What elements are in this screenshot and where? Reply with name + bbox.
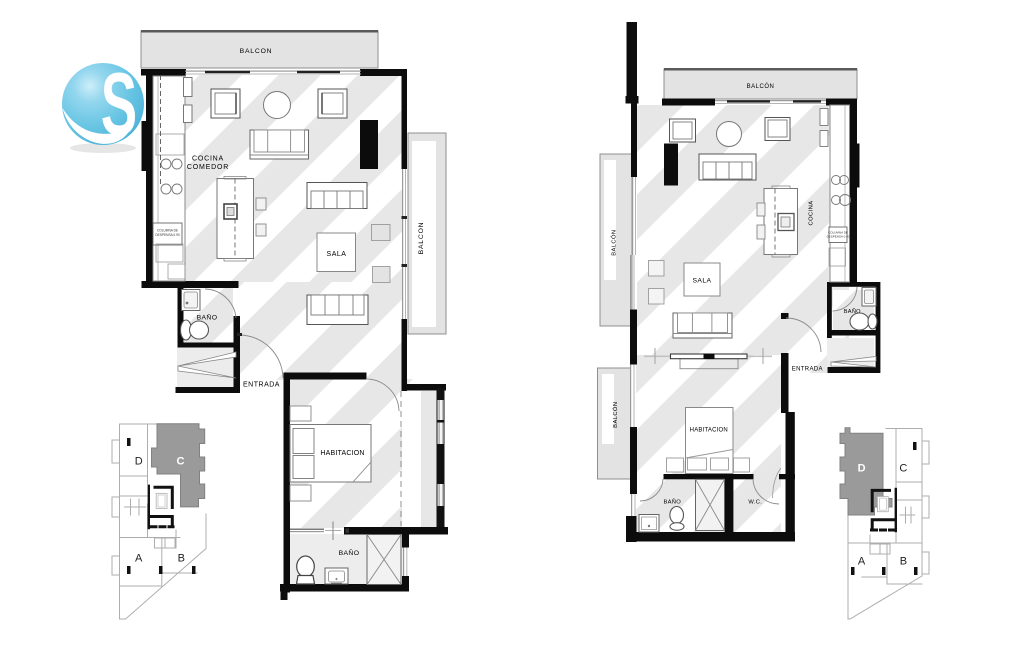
svg-text:COLUMNA DE: COLUMNA DE: [157, 229, 178, 233]
svg-text:A: A: [135, 553, 143, 565]
svg-text:A: A: [858, 556, 866, 568]
svg-text:BAÑO: BAÑO: [197, 313, 218, 322]
svg-text:BALCÓN: BALCÓN: [611, 229, 618, 255]
svg-text:B: B: [900, 556, 907, 568]
svg-text:SALA: SALA: [327, 251, 347, 258]
svg-text:COCINA: COCINA: [809, 201, 815, 226]
svg-text:C: C: [899, 463, 907, 475]
svg-text:BAÑO: BAÑO: [663, 498, 681, 505]
svg-text:B: B: [178, 553, 185, 565]
svg-text:COMEDOR: COMEDOR: [187, 164, 229, 171]
svg-text:BALCÓN: BALCÓN: [747, 83, 775, 90]
svg-text:D: D: [858, 463, 866, 475]
svg-text:DESPENSA 0.90: DESPENSA 0.90: [155, 233, 180, 237]
svg-text:HABITACION: HABITACION: [320, 450, 364, 457]
svg-text:ENTRADA: ENTRADA: [792, 367, 823, 373]
svg-text:S: S: [101, 55, 137, 154]
svg-text:COCINA: COCINA: [192, 156, 224, 163]
svg-text:W.C.: W.C.: [748, 499, 762, 505]
svg-text:DESPENSA 0.90: DESPENSA 0.90: [827, 235, 850, 239]
svg-text:D: D: [135, 456, 143, 468]
svg-text:BALCON: BALCON: [418, 222, 425, 255]
svg-text:BALCON: BALCON: [240, 48, 273, 55]
svg-text:C: C: [177, 456, 185, 468]
svg-text:BAÑO: BAÑO: [339, 548, 360, 557]
svg-text:HABITACION: HABITACION: [690, 427, 728, 433]
svg-text:BALCÓN: BALCÓN: [612, 402, 619, 428]
svg-text:SALA: SALA: [693, 278, 712, 285]
svg-text:ENTRADA: ENTRADA: [243, 382, 280, 389]
